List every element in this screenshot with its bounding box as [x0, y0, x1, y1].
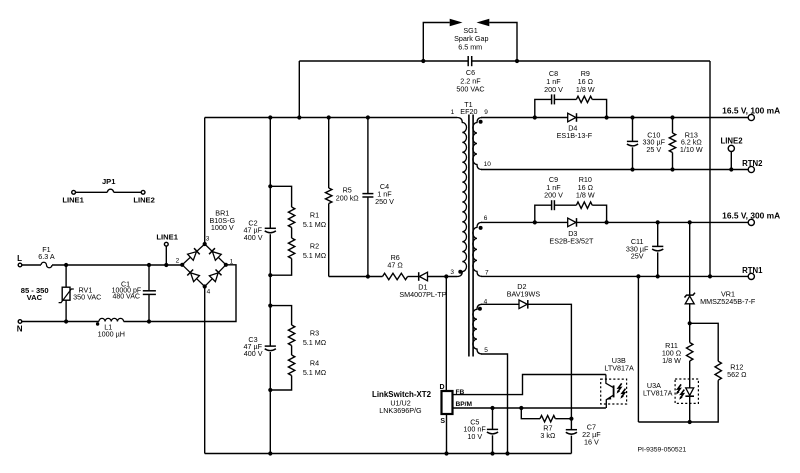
svg-text:9: 9 — [484, 109, 488, 116]
svg-text:10 V: 10 V — [467, 432, 482, 441]
svg-text:3 kΩ: 3 kΩ — [540, 431, 556, 440]
svg-text:4: 4 — [207, 288, 211, 295]
svg-text:VAC: VAC — [27, 293, 43, 302]
svg-text:EF20: EF20 — [460, 107, 477, 116]
svg-text:16 V: 16 V — [584, 438, 599, 447]
svg-text:200 V: 200 V — [544, 85, 563, 94]
svg-text:LinkSwitch-XT2: LinkSwitch-XT2 — [372, 389, 431, 399]
svg-text:1000 V: 1000 V — [211, 223, 234, 232]
svg-text:1: 1 — [230, 258, 234, 265]
svg-text:1/8 W: 1/8 W — [576, 191, 595, 200]
svg-text:10: 10 — [484, 161, 492, 168]
svg-text:R4: R4 — [310, 359, 319, 368]
svg-text:5.1 MΩ: 5.1 MΩ — [303, 220, 327, 229]
svg-text:3: 3 — [450, 269, 454, 276]
svg-text:1/8 W: 1/8 W — [662, 356, 681, 365]
svg-text:R1: R1 — [310, 211, 319, 220]
svg-text:1/8 W: 1/8 W — [576, 85, 595, 94]
svg-text:LINE1: LINE1 — [62, 196, 84, 205]
svg-text:R2: R2 — [310, 242, 319, 251]
svg-text:6.3 A: 6.3 A — [38, 252, 55, 261]
svg-text:ES1B-13-F: ES1B-13-F — [557, 131, 593, 140]
svg-text:5.1 MΩ: 5.1 MΩ — [303, 338, 327, 347]
svg-text:1: 1 — [451, 109, 455, 116]
svg-text:562 Ω: 562 Ω — [727, 370, 747, 379]
svg-text:6: 6 — [484, 215, 488, 222]
svg-text:400 V: 400 V — [244, 233, 263, 242]
svg-text:MMSZ5245B-7-F: MMSZ5245B-7-F — [700, 297, 756, 306]
svg-text:200 V: 200 V — [544, 191, 563, 200]
svg-text:LINE2: LINE2 — [133, 196, 155, 205]
svg-text:LTV817A: LTV817A — [604, 364, 634, 373]
svg-text:7: 7 — [485, 269, 489, 276]
svg-text:BP/M: BP/M — [456, 401, 473, 408]
svg-text:250 V: 250 V — [375, 197, 394, 206]
svg-text:1000 µH: 1000 µH — [98, 330, 125, 339]
svg-text:350 VAC: 350 VAC — [73, 293, 101, 302]
svg-text:25V: 25V — [631, 252, 644, 261]
svg-text:D: D — [440, 384, 445, 391]
svg-text:5: 5 — [484, 347, 488, 354]
svg-text:L: L — [17, 254, 22, 263]
svg-text:JP1: JP1 — [102, 177, 116, 186]
svg-text:3: 3 — [206, 236, 210, 243]
svg-text:5.1 MΩ: 5.1 MΩ — [303, 251, 327, 260]
svg-text:480 VAC: 480 VAC — [112, 293, 140, 300]
svg-text:2: 2 — [176, 257, 180, 264]
svg-text:LINE2: LINE2 — [720, 136, 743, 145]
svg-text:R3: R3 — [310, 329, 319, 338]
svg-text:400 V: 400 V — [244, 349, 263, 358]
svg-text:S: S — [440, 418, 445, 425]
svg-text:SM4007PL-TP: SM4007PL-TP — [399, 290, 446, 299]
svg-text:5.1 MΩ: 5.1 MΩ — [303, 368, 327, 377]
svg-text:1/10 W: 1/10 W — [680, 145, 703, 154]
svg-text:500 VAC: 500 VAC — [456, 85, 484, 94]
svg-text:N: N — [17, 325, 23, 334]
svg-text:BAV19WS: BAV19WS — [507, 290, 541, 299]
svg-text:LINE1: LINE1 — [156, 233, 178, 242]
svg-text:PI-9359-050521: PI-9359-050521 — [638, 446, 687, 453]
svg-text:47 Ω: 47 Ω — [387, 260, 403, 269]
svg-text:ES2B-E3/52T: ES2B-E3/52T — [549, 237, 594, 246]
svg-text:6.5 mm: 6.5 mm — [458, 42, 482, 51]
svg-text:25 V: 25 V — [646, 145, 661, 154]
svg-text:200 kΩ: 200 kΩ — [336, 193, 360, 202]
svg-text:LTV817A: LTV817A — [643, 389, 673, 398]
svg-text:LNK3696P/G: LNK3696P/G — [379, 406, 422, 415]
